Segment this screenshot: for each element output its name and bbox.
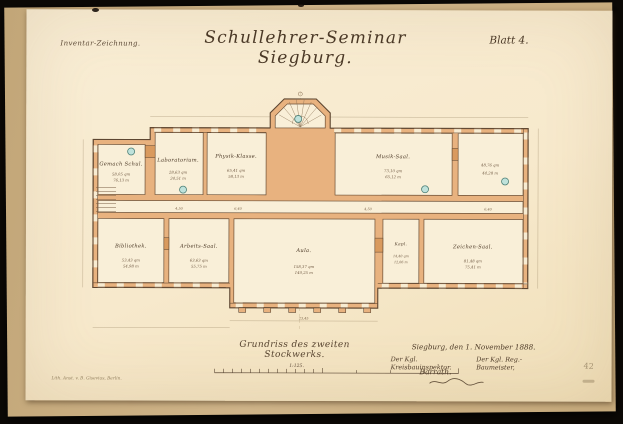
room-label: Aula. [295, 248, 311, 254]
dim-label: 4,50 [174, 207, 183, 211]
room-label: Zeichen-Saal. [452, 244, 493, 250]
room-len: 12,06 m [394, 260, 408, 264]
mount-blemish [92, 8, 99, 12]
room-len: 76,13 m [113, 177, 129, 182]
floor-plan: Gemach Schul. 58,05 qm 76,13 m Laborator… [68, 87, 549, 338]
sheet-number: Blatt 4. [489, 34, 528, 46]
room-area: 63,63 qm [190, 258, 209, 263]
dim-label: 23,45 [298, 316, 309, 320]
drawing-title: Schullehrer-Seminar Siegburg. [185, 28, 425, 69]
room-len: 58,13 m [228, 174, 244, 179]
archive-number: 42 [583, 361, 594, 371]
room-len: 75,41 m [465, 264, 481, 269]
room-label: Gemach Schul. [99, 161, 143, 167]
room-len: 54,98 m [123, 263, 139, 268]
room-area: 81,48 qm [464, 258, 483, 263]
room-label: Physik-Klasse. [214, 154, 257, 160]
room-label: Kapl. [394, 241, 407, 246]
room-len: 65,12 m [385, 174, 401, 179]
room-area: 58,05 qm [112, 171, 131, 176]
mount-blemish [298, 4, 304, 7]
scale-ratio: 1:125. [289, 363, 304, 369]
dim-label: 6,40 [484, 207, 492, 211]
dim-label: 6,40 [234, 207, 242, 211]
room-len: 24,51 m [169, 176, 186, 181]
signature-place-date: Siegburg, den 1. November 1888. [398, 342, 550, 351]
signature-title-right: Der Kgl. Reg.-Baumeister, [476, 355, 556, 371]
plan-caption: Grundriss des zweiten Stockwerks. [210, 340, 380, 360]
room-area: 73,10 qm [384, 168, 403, 173]
lithography-imprint: Lith. Anst. v. B. Gisevius, Berlin. [52, 376, 122, 381]
room-label: Musik-Saal. [375, 154, 410, 160]
dim-label: 4,50 [363, 207, 372, 211]
room-len: 55,75 m [191, 264, 207, 269]
pencil-smudge [583, 380, 595, 383]
room-area: 14,40 qm [393, 254, 409, 258]
signature-scribble [428, 375, 488, 387]
inventory-annotation: Inventar-Zeichnung. [60, 39, 140, 47]
room-area: 53,43 qm [122, 257, 141, 262]
room-area: 65,41 qm [227, 168, 246, 173]
room-area: 158,37 qm [294, 264, 315, 269]
room-area: 48,76 qm [480, 162, 500, 167]
room-area: 28,63 qm [168, 170, 188, 175]
room-label: Arbeits-Saal. [179, 244, 218, 250]
room-label: Bibliothek. [114, 243, 147, 249]
room-label: Laboratorium. [156, 158, 199, 164]
photo-background: { "header": { "annotation": "Inventar-Ze… [0, 0, 623, 423]
signature-titles: Der Kgl. Kreisbauinspektor. Der Kgl. Reg… [391, 355, 557, 371]
room-len: 44,28 m [481, 170, 498, 175]
room-len: 140,25 m [295, 270, 314, 275]
drawing-sheet: Inventar-Zeichnung. Schullehrer-Seminar … [25, 9, 612, 402]
sheet-content: Inventar-Zeichnung. Schullehrer-Seminar … [0, 0, 623, 424]
